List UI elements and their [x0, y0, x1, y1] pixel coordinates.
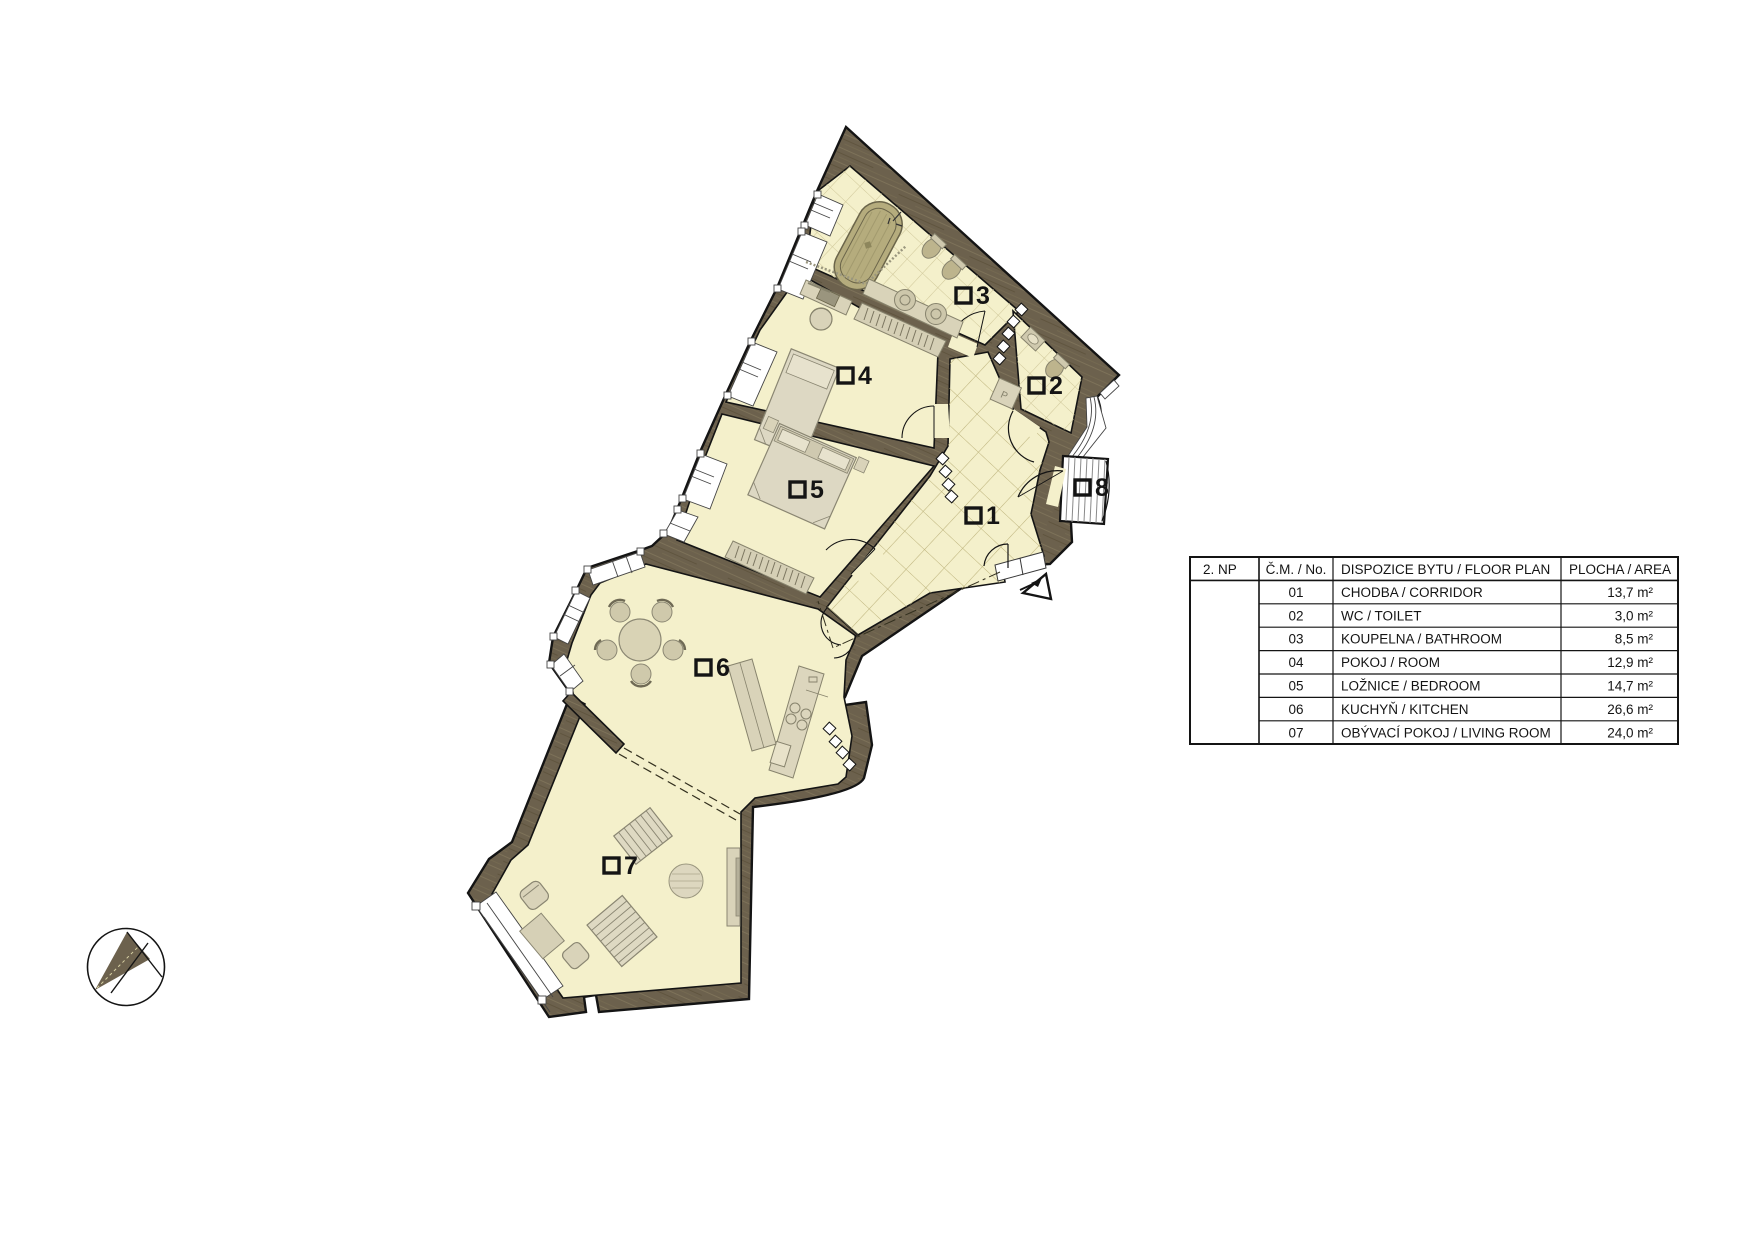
svg-text:CHODBA / CORRIDOR: CHODBA / CORRIDOR: [1341, 585, 1483, 600]
svg-text:3: 3: [976, 282, 990, 310]
svg-text:KOUPELNA / BATHROOM: KOUPELNA / BATHROOM: [1341, 632, 1502, 647]
svg-text:14,7 m²: 14,7 m²: [1607, 679, 1653, 694]
svg-text:07: 07: [1288, 725, 1303, 740]
svg-text:6: 6: [716, 654, 730, 682]
svg-text:26,6 m²: 26,6 m²: [1607, 702, 1653, 717]
svg-text:12,9 m²: 12,9 m²: [1607, 655, 1653, 670]
svg-text:24,0 m²: 24,0 m²: [1607, 725, 1653, 740]
svg-text:2: 2: [1049, 372, 1063, 400]
svg-text:4: 4: [858, 362, 872, 390]
svg-text:13,7 m²: 13,7 m²: [1607, 585, 1653, 600]
svg-text:LOŽNICE / BEDROOM: LOŽNICE / BEDROOM: [1341, 679, 1481, 694]
svg-text:1: 1: [986, 502, 1000, 530]
svg-text:02: 02: [1288, 608, 1303, 623]
svg-text:3,0 m²: 3,0 m²: [1615, 608, 1654, 623]
svg-text:06: 06: [1288, 702, 1303, 717]
svg-text:2. NP: 2. NP: [1203, 562, 1237, 577]
svg-text:8,5 m²: 8,5 m²: [1615, 632, 1654, 647]
svg-text:7: 7: [624, 852, 638, 880]
svg-text:Č.M. / No.: Č.M. / No.: [1266, 562, 1327, 577]
svg-text:05: 05: [1288, 679, 1303, 694]
svg-text:04: 04: [1288, 655, 1304, 670]
svg-text:KUCHYŇ / KITCHEN: KUCHYŇ / KITCHEN: [1341, 702, 1469, 717]
svg-text:01: 01: [1288, 585, 1303, 600]
svg-text:5: 5: [810, 476, 824, 504]
svg-text:03: 03: [1288, 632, 1303, 647]
svg-text:POKOJ / ROOM: POKOJ / ROOM: [1341, 655, 1440, 670]
svg-text:8: 8: [1095, 474, 1109, 502]
svg-text:WC / TOILET: WC / TOILET: [1341, 608, 1422, 623]
svg-text:OBÝVACÍ POKOJ / LIVING ROOM: OBÝVACÍ POKOJ / LIVING ROOM: [1341, 725, 1551, 740]
svg-text:PLOCHA / AREA: PLOCHA / AREA: [1569, 562, 1671, 577]
svg-text:DISPOZICE BYTU / FLOOR PLAN: DISPOZICE BYTU / FLOOR PLAN: [1341, 562, 1550, 577]
